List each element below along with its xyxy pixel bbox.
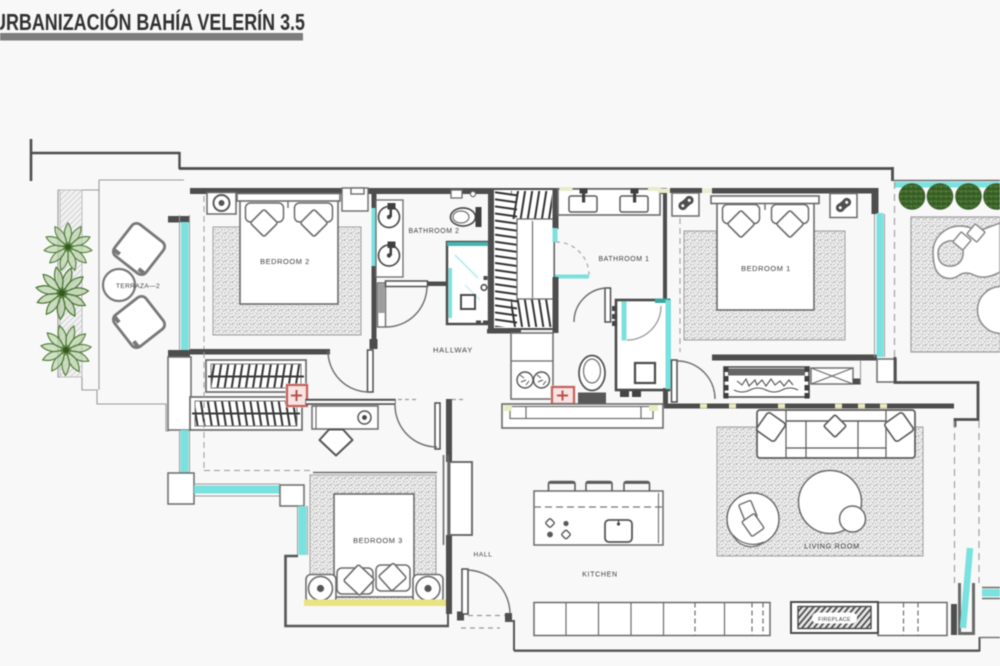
svg-text:FIREPLACE: FIREPLACE [818,617,851,623]
svg-text:BATHROOM 2: BATHROOM 2 [408,228,459,235]
svg-text:LIVING ROOM: LIVING ROOM [804,542,860,551]
svg-text:BEDROOM 1: BEDROOM 1 [741,264,791,273]
svg-text:KITCHEN: KITCHEN [582,572,618,579]
svg-text:BATHROOM 1: BATHROOM 1 [598,256,649,263]
svg-text:BEDROOM 2: BEDROOM 2 [260,257,310,266]
svg-text:HALLWAY: HALLWAY [433,346,473,355]
svg-text:HALL: HALL [473,552,492,559]
svg-text:BEDROOM 3: BEDROOM 3 [353,536,403,545]
svg-text:TERRAZA—2: TERRAZA—2 [116,283,160,290]
svg-text:URBANIZACIÓN BAHÍA VELERÍN 3.5: URBANIZACIÓN BAHÍA VELERÍN 3.5 [0,8,305,35]
